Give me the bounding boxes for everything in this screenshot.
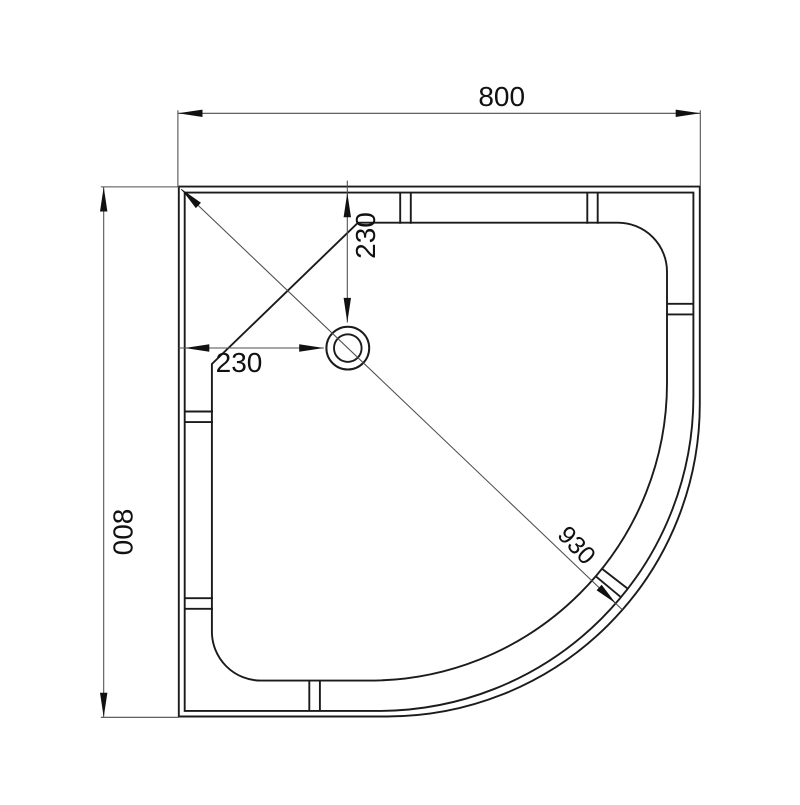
svg-text:930: 930 <box>552 521 601 571</box>
svg-text:008: 008 <box>108 509 139 556</box>
svg-text:800: 800 <box>478 81 525 112</box>
svg-text:230: 230 <box>216 347 263 378</box>
svg-text:230: 230 <box>350 212 381 259</box>
